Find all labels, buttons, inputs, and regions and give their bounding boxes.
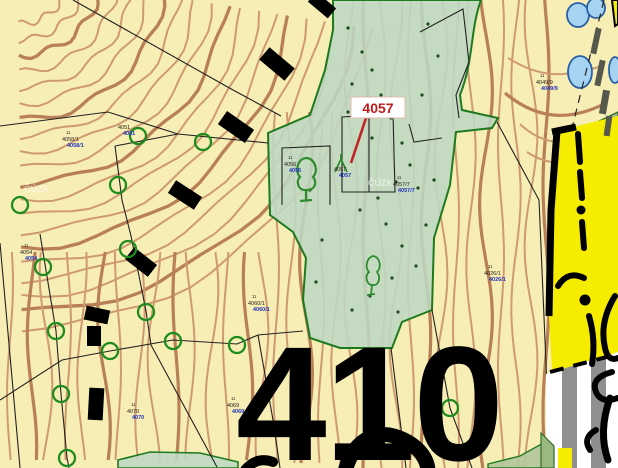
svg-text:11: 11 <box>540 73 545 78</box>
svg-text:4049/9: 4049/9 <box>541 86 558 92</box>
svg-text:11: 11 <box>488 264 493 269</box>
water-body <box>567 3 589 27</box>
svg-text:4057/7: 4057/7 <box>398 188 415 194</box>
svg-text:11: 11 <box>397 175 402 180</box>
svg-text:11: 11 <box>252 294 257 299</box>
svg-text:4056: 4056 <box>289 168 301 174</box>
cadastral-map-view[interactable]: 114058/14058/1405140511140544054114060/1… <box>0 0 618 468</box>
watermark-text: ČÚZK <box>368 177 393 188</box>
svg-text:11: 11 <box>66 130 71 135</box>
svg-text:4070: 4070 <box>132 415 144 421</box>
svg-text:11: 11 <box>24 243 29 248</box>
water-body <box>609 57 618 83</box>
callout-label: 4057 <box>362 100 393 116</box>
map-canvas: 114058/14058/1405140511140544054114060/1… <box>0 0 618 468</box>
watermark-text: ČÚZK <box>24 183 49 194</box>
trail-dash <box>88 388 105 421</box>
svg-text:4051: 4051 <box>123 131 135 137</box>
svg-text:11: 11 <box>131 402 136 407</box>
road-black-border-top <box>552 127 576 132</box>
yellow-corner-square <box>558 448 572 468</box>
svg-text:4054: 4054 <box>25 256 38 262</box>
svg-text:4058/1: 4058/1 <box>67 143 84 149</box>
svg-text:11: 11 <box>288 155 293 160</box>
svg-text:4026/1: 4026/1 <box>489 277 506 283</box>
water-body <box>587 0 605 18</box>
svg-text:4057: 4057 <box>339 173 351 179</box>
trail-dash <box>87 326 101 346</box>
